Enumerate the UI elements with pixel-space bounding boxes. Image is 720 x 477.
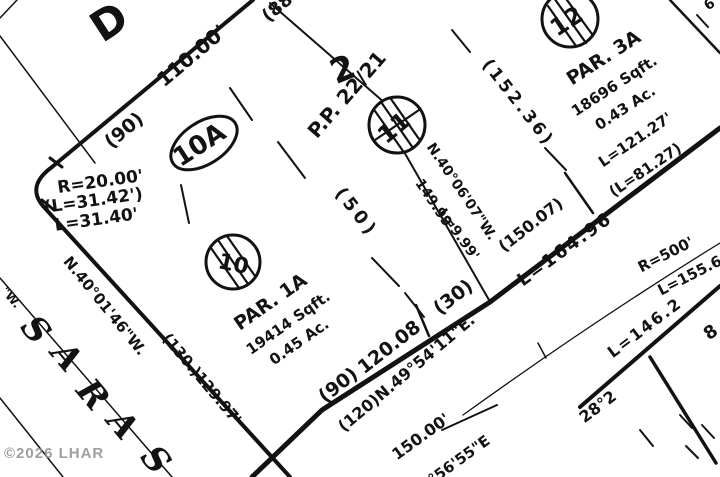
dash-segment xyxy=(640,430,653,446)
map-label: 150.00' xyxy=(388,409,453,464)
map-label: (50) xyxy=(330,183,382,241)
watermark: ©2026 LHAR xyxy=(4,445,104,462)
boundary-line xyxy=(0,36,95,163)
dash-segment xyxy=(405,293,424,317)
dash-segment xyxy=(702,425,714,438)
street-letter: S xyxy=(132,438,178,477)
map-label: "W. xyxy=(0,284,24,311)
plat-map: D110.00'(90)(882P.P. 22/21(152.36)R=20.0… xyxy=(0,0,720,477)
dash-segment xyxy=(181,185,189,223)
dash-segment xyxy=(686,446,698,458)
dash-segment xyxy=(230,88,252,120)
map-label: 8 xyxy=(700,320,720,344)
boundary-line xyxy=(565,173,593,213)
dash-segment xyxy=(545,148,566,170)
map-label: 6 xyxy=(701,0,718,14)
street-letter: S xyxy=(12,308,58,353)
street-letter-d: D xyxy=(81,0,137,52)
map-label: 110.00' xyxy=(152,20,231,92)
dash-segment xyxy=(278,142,305,178)
dash-segment xyxy=(372,258,399,286)
map-label: (152.36) xyxy=(478,55,558,150)
boundary-line xyxy=(538,343,546,358)
boundary-line xyxy=(650,357,716,463)
boundary-line xyxy=(0,0,17,18)
plat-drawing: D110.00'(90)(882P.P. 22/21(152.36)R=20.0… xyxy=(0,0,720,477)
dash-segment xyxy=(452,30,470,52)
map-label: °56'55"E xyxy=(425,432,494,477)
map-label: (90) xyxy=(100,108,148,153)
street-letter: R xyxy=(67,370,116,418)
boundary-line xyxy=(580,286,720,407)
street-letter: A xyxy=(97,400,147,448)
lot-10a-number: 10A xyxy=(168,117,232,173)
map-label: (130.)129.97' xyxy=(159,330,246,428)
boundary-line xyxy=(0,398,63,477)
dash-segment xyxy=(697,15,708,27)
